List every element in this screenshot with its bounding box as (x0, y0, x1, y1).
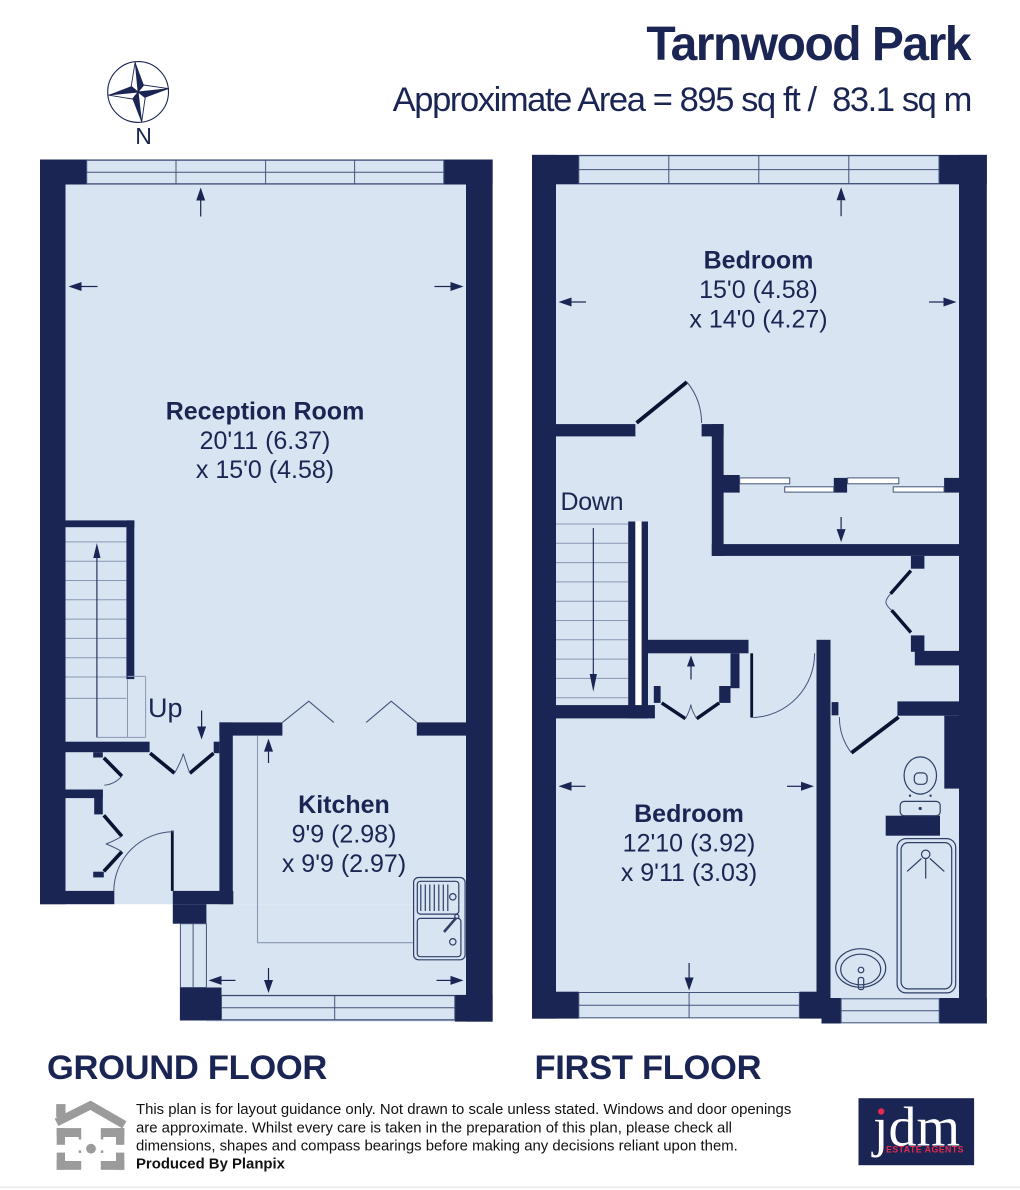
svg-text:x 14'0 (4.27): x 14'0 (4.27) (689, 305, 827, 333)
svg-text:12'10 (3.92): 12'10 (3.92) (623, 829, 756, 857)
svg-text:ESTATE AGENTS: ESTATE AGENTS (886, 1144, 964, 1154)
svg-text:are approximate. Whilst every: are approximate. Whilst every care is ta… (136, 1121, 732, 1137)
svg-text:Reception Room: Reception Room (166, 398, 365, 426)
svg-text:Bedroom: Bedroom (634, 800, 744, 828)
svg-text:Bedroom: Bedroom (704, 247, 814, 275)
svg-text:20'11 (6.37): 20'11 (6.37) (200, 427, 331, 455)
svg-text:15'0 (4.58): 15'0 (4.58) (699, 276, 818, 304)
svg-text:GROUND FLOOR: GROUND FLOOR (47, 1049, 327, 1087)
svg-text:Down: Down (561, 488, 624, 516)
svg-text:N: N (135, 123, 152, 149)
svg-text:Approximate Area = 895 sq ft /: Approximate Area = 895 sq ft / 83.1 sq m (393, 81, 971, 119)
svg-text:Kitchen: Kitchen (298, 791, 390, 819)
svg-text:x 9'11 (3.03): x 9'11 (3.03) (621, 859, 757, 887)
svg-text:Tarnwood Park: Tarnwood Park (646, 18, 971, 71)
svg-text:9'9 (2.98): 9'9 (2.98) (292, 820, 397, 848)
svg-text:x 9'9 (2.97): x 9'9 (2.97) (282, 850, 406, 878)
svg-text:FIRST FLOOR: FIRST FLOOR (535, 1049, 762, 1087)
svg-text:Up: Up (148, 693, 183, 723)
svg-text:This plan is for layout guidan: This plan is for layout guidance only. N… (136, 1102, 791, 1118)
svg-text:Produced By Planpix: Produced By Planpix (136, 1156, 286, 1172)
svg-text:x 15'0 (4.58): x 15'0 (4.58) (196, 456, 334, 484)
svg-text:dimensions, shapes and compass: dimensions, shapes and compass bearings … (136, 1139, 738, 1155)
